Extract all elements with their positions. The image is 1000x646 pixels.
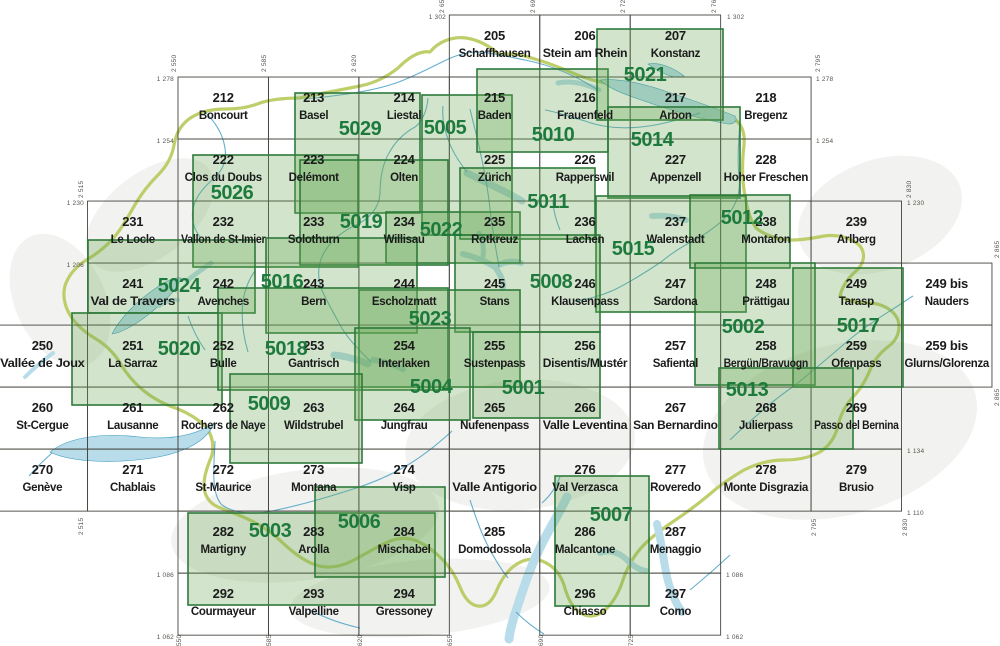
sheet-number-260: 260 — [32, 400, 53, 415]
sheet-name-294: Gressoney — [376, 606, 434, 618]
sheet-number-246: 246 — [574, 276, 595, 291]
sheet-number-285: 285 — [484, 524, 505, 539]
sheet-name-247: Sardona — [653, 296, 698, 308]
sheet-number-274: 274 — [394, 462, 416, 477]
sheet-name-297: Como — [660, 606, 692, 618]
sheet-number-256: 256 — [574, 338, 595, 353]
composite-number-5015: 5015 — [612, 238, 655, 260]
sheet-number-212: 212 — [213, 90, 234, 105]
sheet-number-292: 292 — [213, 586, 234, 601]
sheet-number-294: 294 — [394, 586, 416, 601]
sheet-number-205: 205 — [484, 28, 505, 43]
sheet-number-244: 244 — [394, 276, 416, 291]
composite-number-5023: 5023 — [409, 308, 452, 330]
map-index: 205Schaffhausen206Stein am Rhein207Konst… — [0, 0, 1000, 646]
sheet-name-282: Martigny — [200, 544, 246, 556]
edge-coordinate-label: 1 206 — [67, 262, 84, 269]
sheet-name-277: Roveredo — [650, 482, 701, 494]
composite-number-5013: 5013 — [726, 379, 769, 401]
composite-number-5019: 5019 — [340, 211, 383, 233]
sheet-number-287: 287 — [665, 524, 686, 539]
sheet-number-241: 241 — [122, 276, 143, 291]
sheet-name-228: Hoher Freschen — [724, 172, 809, 184]
sheet-number-223: 223 — [303, 152, 324, 167]
edge-coordinate-label: 2 865 — [994, 389, 1000, 406]
sheet-number-259-bis: 259 bis — [925, 338, 968, 353]
sheet-number-234: 234 — [394, 214, 416, 229]
sheet-cell-249-bis — [902, 263, 992, 325]
sheet-name-245: Stans — [480, 296, 510, 308]
sheet-number-232: 232 — [213, 214, 234, 229]
sheet-number-297: 297 — [665, 586, 686, 601]
sheet-number-237: 237 — [665, 214, 686, 229]
sheet-number-270: 270 — [32, 462, 53, 477]
composite-area-5007 — [555, 476, 649, 606]
composite-number-5018: 5018 — [265, 338, 308, 360]
sheet-number-213: 213 — [303, 90, 324, 105]
sheet-number-245: 245 — [484, 276, 505, 291]
sheet-name-265: Nufenenpass — [460, 420, 529, 432]
sheet-name-248: Prättigau — [742, 296, 789, 308]
sheet-number-218: 218 — [755, 90, 776, 105]
sheet-name-213: Basel — [299, 110, 328, 122]
sheet-name-237: Walenstadt — [646, 234, 704, 246]
sheet-number-271: 271 — [122, 462, 143, 477]
sheet-name-296: Chiasso — [564, 606, 607, 618]
sheet-name-249-bis: Nauders — [925, 296, 969, 308]
edge-coordinate-label: 2 795 — [811, 519, 818, 536]
sheet-number-235: 235 — [484, 214, 505, 229]
sheet-name-268: Julierpass — [739, 420, 793, 432]
sheet-name-262: Rochers de Naye — [181, 420, 265, 432]
composite-number-5002: 5002 — [722, 316, 765, 338]
sheet-name-227: Appenzell — [650, 172, 702, 184]
edge-coordinate-label: 1 254 — [816, 138, 833, 145]
composite-number-5008: 5008 — [530, 271, 573, 293]
edge-coordinate-label: 2 585 — [266, 635, 273, 646]
composite-number-5006: 5006 — [338, 511, 381, 533]
sheet-number-255: 255 — [484, 338, 505, 353]
sheet-number-239: 239 — [846, 214, 867, 229]
sheet-number-216: 216 — [574, 90, 595, 105]
edge-coordinate-label: 2 830 — [906, 181, 913, 198]
sheet-number-266: 266 — [574, 400, 595, 415]
sheet-name-266: Valle Leventina — [543, 420, 628, 432]
sheet-number-217: 217 — [665, 90, 686, 105]
sheet-name-212: Boncourt — [199, 110, 248, 122]
sheet-name-234: Willisau — [384, 234, 425, 246]
edge-coordinate-label: 2 515 — [78, 518, 85, 535]
sheet-name-231: Le Locle — [111, 234, 155, 246]
sheet-number-257: 257 — [665, 338, 686, 353]
sheet-name-260: St-Cergue — [16, 420, 68, 432]
composite-number-5021: 5021 — [624, 64, 667, 86]
sheet-name-250: Vallée de Joux — [0, 358, 85, 370]
edge-coordinate-label: 2 515 — [78, 181, 85, 198]
sheet-name-275: Valle Antigorio — [452, 482, 537, 494]
sheet-name-216: Frauenfeld — [557, 110, 613, 122]
sheet-name-214: Liestal — [387, 110, 421, 122]
river — [690, 555, 730, 590]
composite-number-5011: 5011 — [527, 191, 569, 213]
sheet-name-254: Interlaken — [378, 358, 430, 370]
sheet-number-243: 243 — [303, 276, 324, 291]
sheet-name-292: Courmayeur — [191, 606, 257, 618]
sheet-number-214: 214 — [394, 90, 416, 105]
sheet-name-226: Rapperswil — [556, 172, 614, 184]
sheet-name-236: Lachen — [566, 234, 605, 246]
sheet-name-273: Montana — [291, 482, 337, 494]
edge-coordinate-label: 2 620 — [351, 55, 358, 72]
sheet-number-226: 226 — [574, 152, 595, 167]
composite-number-5020: 5020 — [158, 338, 201, 360]
sheet-name-287: Menaggio — [650, 544, 702, 556]
sheet-number-296: 296 — [574, 586, 595, 601]
sheet-name-235: Rotkreuz — [471, 234, 518, 246]
edge-coordinate-label: 2 725 — [628, 635, 635, 646]
composite-number-5016: 5016 — [261, 271, 304, 293]
edge-coordinate-label: 1 062 — [157, 634, 174, 641]
edge-coordinate-label: 2 760 — [711, 0, 718, 13]
sheet-name-271: Chablais — [110, 482, 156, 494]
sheet-name-224: Olten — [390, 172, 418, 184]
sheet-name-257: Safiental — [653, 358, 698, 370]
composite-number-5029: 5029 — [339, 118, 382, 140]
sheet-number-224: 224 — [394, 152, 416, 167]
edge-coordinate-label: 1 110 — [907, 510, 924, 517]
sheet-name-267: San Bernardino — [633, 420, 718, 432]
composite-number-5003: 5003 — [249, 520, 292, 542]
sheet-number-276: 276 — [574, 462, 595, 477]
sheet-number-249-bis: 249 bis — [925, 276, 968, 291]
sheet-number-228: 228 — [755, 152, 776, 167]
sheet-name-206: Stein am Rhein — [543, 48, 628, 60]
sheet-name-246: Klausenpass — [551, 296, 619, 308]
sheet-number-272: 272 — [213, 462, 234, 477]
sheet-name-259-bis: Glurns/Glorenza — [905, 358, 990, 370]
sheet-name-269: Passo del Bernina — [814, 420, 899, 432]
edge-coordinate-label: 2 655 — [439, 0, 446, 13]
edge-coordinate-label: 2 830 — [902, 519, 909, 536]
sheet-name-256: Disentis/Mustér — [543, 358, 628, 370]
sheet-number-293: 293 — [303, 586, 324, 601]
edge-coordinate-label: 2 725 — [620, 0, 627, 13]
edge-coordinate-label: 1 302 — [727, 14, 744, 21]
map-svg: 205Schaffhausen206Stein am Rhein207Konst… — [0, 0, 1000, 646]
sheet-name-284: Mischabel — [378, 544, 431, 556]
composite-number-5005: 5005 — [424, 117, 467, 139]
composite-number-5017: 5017 — [837, 315, 880, 337]
sheet-number-254: 254 — [394, 338, 416, 353]
edge-coordinate-label: 2 655 — [447, 635, 454, 646]
sheet-number-215: 215 — [484, 90, 505, 105]
sheet-number-278: 278 — [755, 462, 776, 477]
composite-number-5022: 5022 — [420, 219, 463, 241]
sheet-name-249: Tarasp — [839, 296, 874, 308]
edge-coordinate-label: 2 865 — [994, 241, 1000, 258]
sheet-number-267: 267 — [665, 400, 686, 415]
sheet-name-207: Konstanz — [651, 48, 701, 60]
edge-coordinate-label: 2 550 — [176, 635, 183, 646]
composite-number-5024: 5024 — [158, 275, 202, 297]
edge-coordinate-label: 2 585 — [261, 55, 268, 72]
sheet-number-258: 258 — [755, 338, 776, 353]
sheet-number-231: 231 — [122, 214, 143, 229]
sheet-name-270: Genève — [22, 482, 62, 494]
sheet-name-263: Wildstrubel — [284, 420, 343, 432]
sheet-number-247: 247 — [665, 276, 686, 291]
sheet-name-264: Jungfrau — [381, 420, 428, 432]
sheet-number-269: 269 — [846, 400, 867, 415]
sheet-name-255: Sustenpass — [464, 358, 526, 370]
sheet-name-215: Baden — [478, 110, 512, 122]
sheet-number-268: 268 — [755, 400, 776, 415]
sheet-name-205: Schaffhausen — [459, 48, 531, 60]
sheet-name-217: Arbon — [659, 110, 692, 122]
sheet-number-283: 283 — [303, 524, 324, 539]
composite-area-5009 — [230, 374, 362, 463]
composite-number-5004: 5004 — [410, 376, 454, 398]
sheet-name-241: Val de Travers — [91, 296, 175, 308]
sheet-number-250: 250 — [32, 338, 53, 353]
sheet-number-279: 279 — [846, 462, 867, 477]
sheet-number-222: 222 — [213, 152, 234, 167]
sheet-name-274: Visp — [393, 482, 416, 494]
sheet-number-259: 259 — [846, 338, 867, 353]
sheet-number-206: 206 — [574, 28, 595, 43]
sheet-number-236: 236 — [574, 214, 595, 229]
edge-coordinate-label: 2 690 — [538, 635, 545, 646]
sheet-name-251: La Sarraz — [108, 358, 158, 370]
sheet-name-272: St-Maurice — [195, 482, 251, 494]
sheet-name-243: Bern — [301, 296, 326, 308]
sheet-name-239: Arlberg — [837, 234, 876, 246]
sheet-number-227: 227 — [665, 152, 686, 167]
edge-coordinate-label: 2 550 — [171, 55, 178, 72]
sheet-number-286: 286 — [574, 524, 595, 539]
edge-coordinate-label: 1 278 — [816, 76, 833, 83]
sheet-number-225: 225 — [484, 152, 505, 167]
sheet-name-293: Valpelline — [289, 606, 339, 618]
sheet-name-218: Bregenz — [744, 110, 788, 122]
sheet-number-263: 263 — [303, 400, 324, 415]
edge-coordinate-label: 1 278 — [157, 76, 174, 83]
edge-coordinate-label: 1 302 — [429, 14, 446, 21]
sheet-name-286: Malcantone — [555, 544, 615, 556]
sheet-number-252: 252 — [213, 338, 234, 353]
composite-number-5009: 5009 — [248, 393, 291, 415]
sheet-name-223: Delémont — [289, 172, 339, 184]
edge-coordinate-label: 1 230 — [907, 200, 924, 207]
composite-number-5012: 5012 — [721, 207, 764, 229]
composite-number-5010: 5010 — [532, 124, 575, 146]
sheet-number-251: 251 — [122, 338, 143, 353]
sheet-name-259: Ofenpass — [831, 358, 881, 370]
edge-coordinate-label: 2 795 — [815, 55, 822, 72]
sheet-number-282: 282 — [213, 524, 234, 539]
sheet-name-276: Val Verzasca — [552, 482, 618, 494]
composite-number-5014: 5014 — [631, 129, 675, 151]
sheet-name-238: Montafon — [741, 234, 791, 246]
sheet-name-279: Brusio — [839, 482, 874, 494]
edge-coordinate-label: 1 134 — [907, 448, 924, 455]
sheet-name-242: Avenches — [197, 296, 249, 308]
sheet-number-262: 262 — [213, 400, 234, 415]
sheet-name-261: Lausanne — [107, 420, 158, 432]
sheet-name-225: Zürich — [478, 172, 512, 184]
edge-coordinate-label: 1 062 — [726, 634, 743, 641]
sheet-name-258: Bergün/Bravuogn — [724, 358, 809, 370]
sheet-number-264: 264 — [394, 400, 416, 415]
sheet-number-265: 265 — [484, 400, 505, 415]
sheet-number-248: 248 — [755, 276, 776, 291]
composite-number-5007: 5007 — [590, 504, 633, 526]
composite-area-5012 — [690, 195, 790, 268]
sheet-number-233: 233 — [303, 214, 324, 229]
sheet-name-232: Vallon de St-Imier — [181, 234, 266, 246]
sheet-number-242: 242 — [213, 276, 234, 291]
sheet-number-275: 275 — [484, 462, 505, 477]
sheet-name-244: Escholzmatt — [372, 296, 437, 308]
sheet-number-277: 277 — [665, 462, 686, 477]
composite-number-5001: 5001 — [502, 377, 545, 399]
sheet-name-252: Bulle — [210, 358, 237, 370]
edge-coordinate-label: 1 086 — [726, 572, 743, 579]
sheet-name-233: Solothurn — [288, 234, 340, 246]
edge-coordinate-label: 1 254 — [157, 138, 174, 145]
composite-number-5026: 5026 — [211, 182, 254, 204]
sheet-number-249: 249 — [846, 276, 867, 291]
edge-coordinate-label: 1 230 — [67, 200, 84, 207]
sheet-number-273: 273 — [303, 462, 324, 477]
sheet-cell-205 — [449, 15, 539, 77]
edge-coordinate-label: 2 690 — [530, 0, 537, 13]
edge-coordinate-label: 1 086 — [157, 572, 174, 579]
sheet-number-284: 284 — [394, 524, 416, 539]
sheet-number-207: 207 — [665, 28, 686, 43]
edge-coordinate-label: 2 620 — [357, 635, 364, 646]
sheet-name-285: Domodossola — [458, 544, 532, 556]
sheet-name-283: Arolla — [298, 544, 330, 556]
sheet-number-261: 261 — [122, 400, 143, 415]
sheet-name-278: Monte Disgrazia — [724, 482, 809, 494]
